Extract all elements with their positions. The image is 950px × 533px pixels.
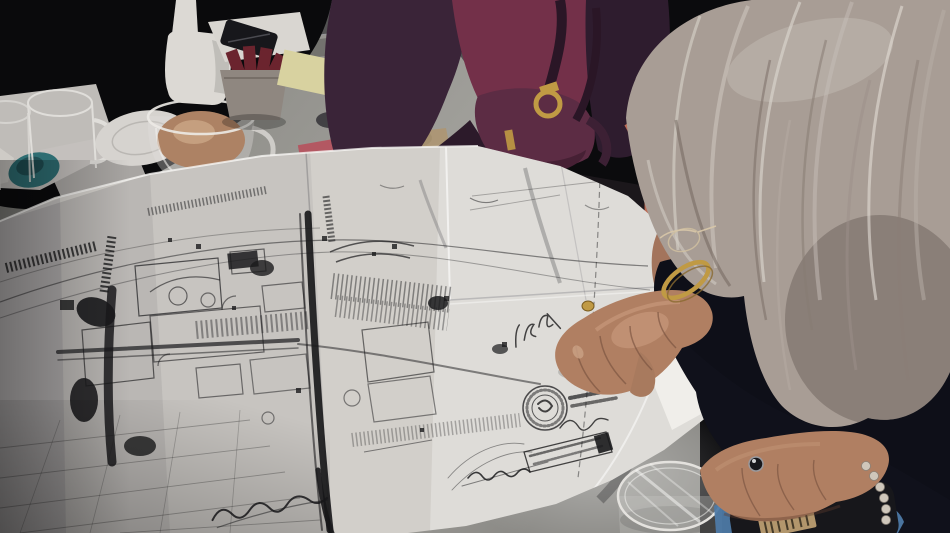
sugar-packet-cup (220, 46, 288, 130)
ring-glint (752, 459, 756, 463)
photo-scene (0, 0, 950, 533)
dark-stone-ring (749, 457, 763, 471)
bottom-left-vignette (0, 400, 330, 533)
gold-ring (582, 301, 594, 311)
photo-canvas (0, 0, 950, 533)
